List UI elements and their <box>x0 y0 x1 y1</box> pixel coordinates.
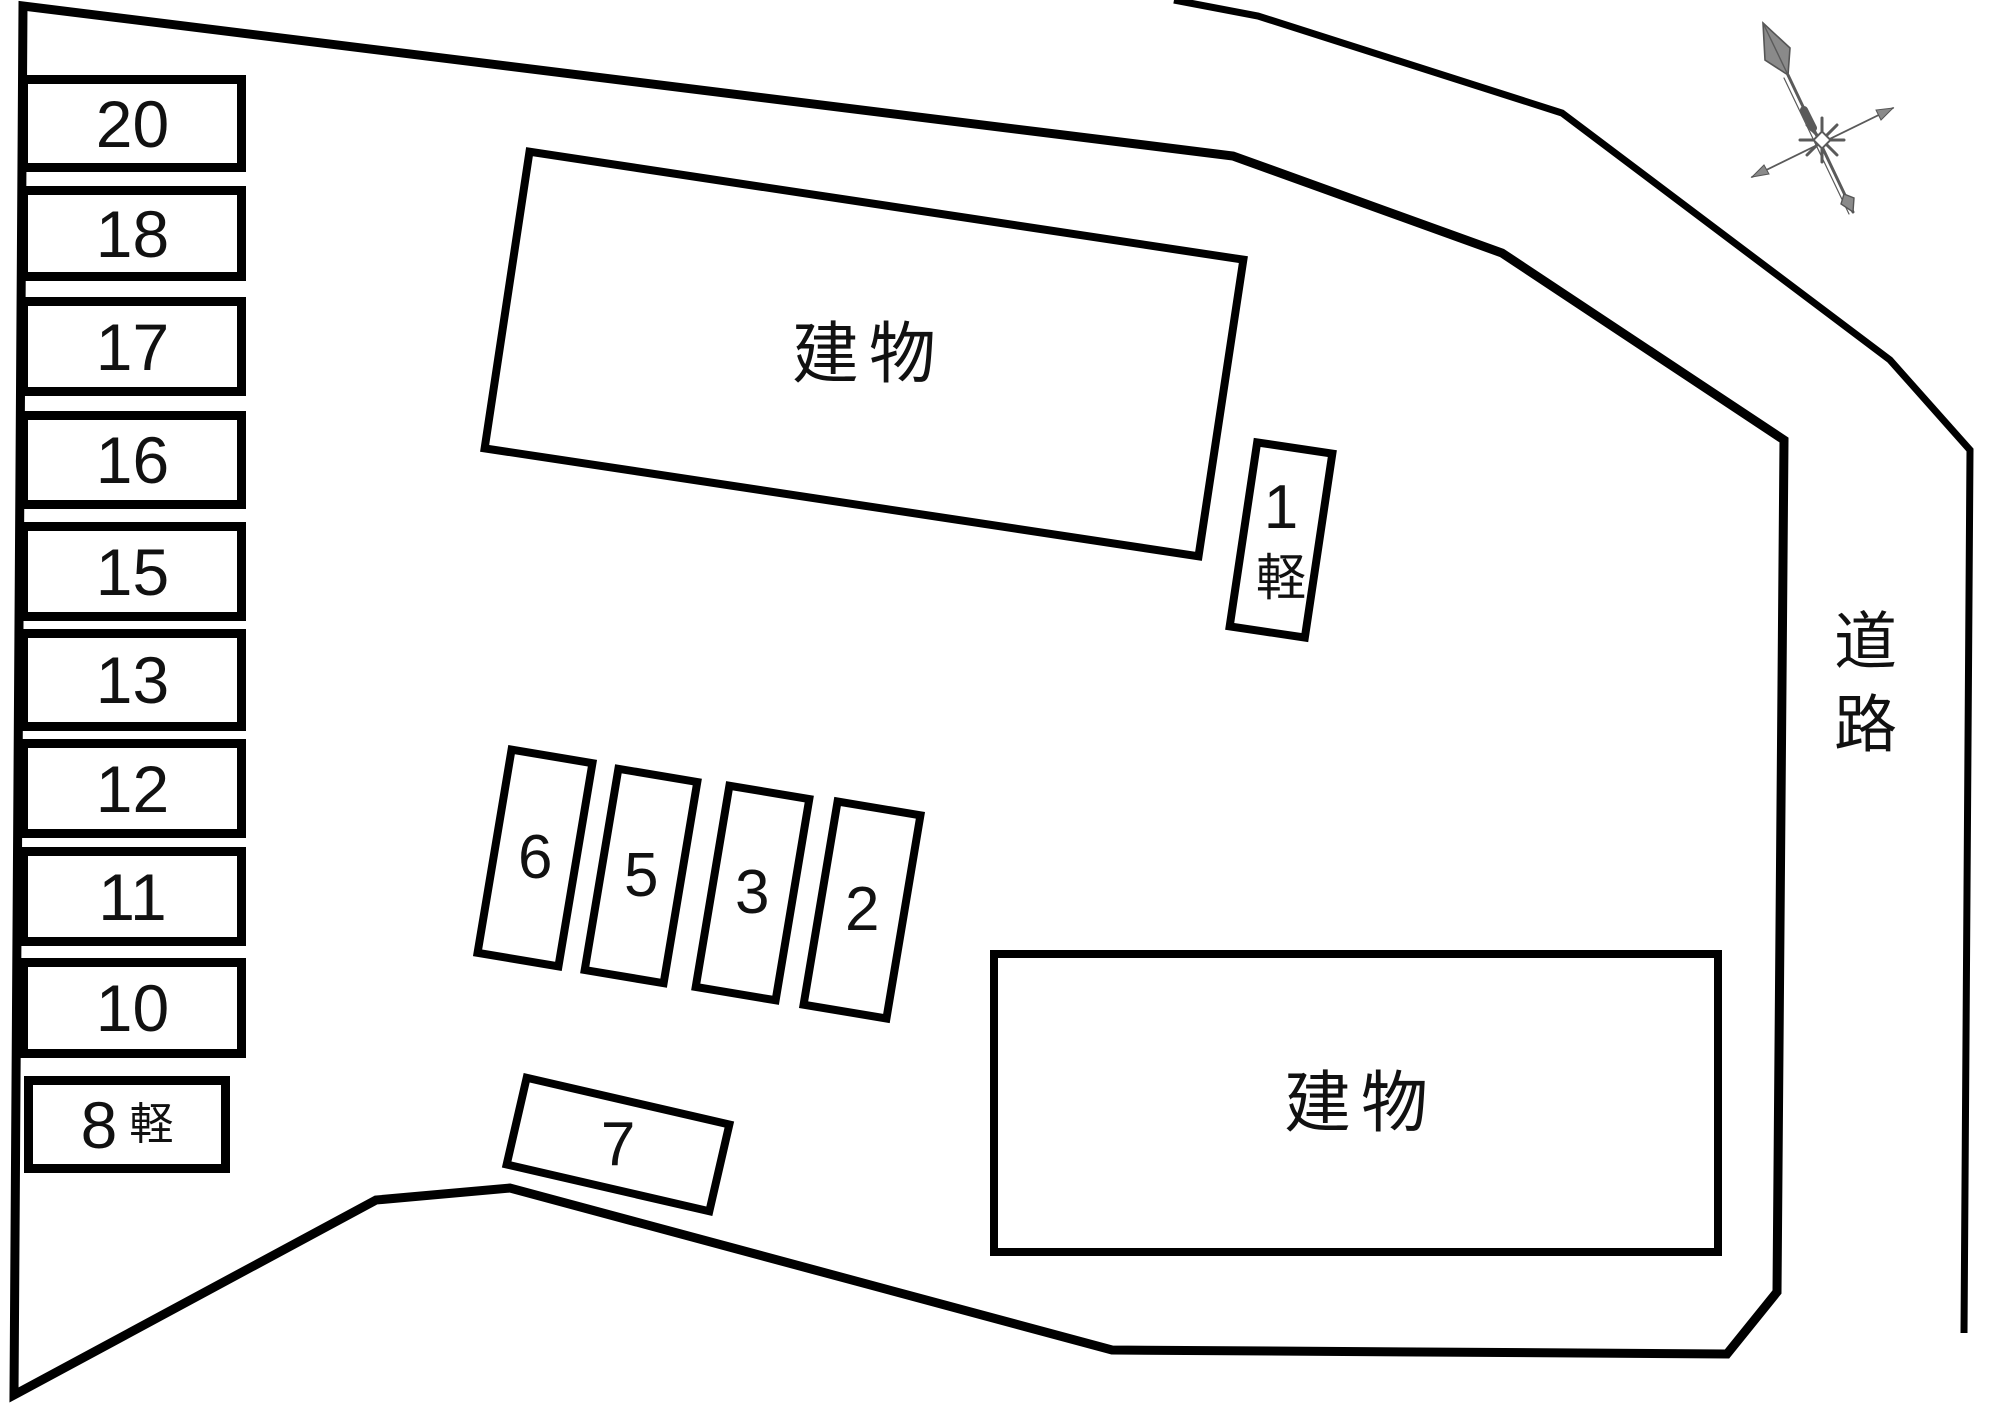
parking-space-15: 15 <box>19 522 246 621</box>
space-number: 18 <box>96 201 169 267</box>
building-label: 建物 <box>782 321 946 388</box>
space-number: 12 <box>96 756 169 822</box>
parking-space-18: 18 <box>19 186 246 281</box>
space-number: 1 <box>1264 477 1298 539</box>
space-number: 11 <box>98 864 167 930</box>
space-number: 13 <box>96 647 169 713</box>
road-label: 道路 <box>1828 608 1891 774</box>
space-number: 17 <box>96 314 169 380</box>
parking-space-17: 17 <box>19 297 246 396</box>
space-number: 3 <box>735 862 769 924</box>
space-number: 20 <box>96 91 169 157</box>
space-number: 15 <box>96 539 169 605</box>
compass-rose-icon <box>1744 16 1904 221</box>
kei-car-tag: 軽 <box>1256 553 1306 603</box>
space-number: 7 <box>601 1113 635 1175</box>
space-number: 8 <box>81 1092 118 1158</box>
space-number: 10 <box>96 975 169 1041</box>
parking-space-13: 13 <box>19 629 246 731</box>
parking-space-11: 11 <box>19 847 246 946</box>
parking-space-16: 16 <box>19 411 246 509</box>
kei-car-tag: 軽 <box>129 1103 173 1147</box>
space-number: 16 <box>96 427 169 493</box>
building-label: 建物 <box>1274 1070 1438 1137</box>
space-number: 6 <box>518 827 552 889</box>
parking-space-12: 12 <box>19 739 246 838</box>
space-number: 2 <box>845 879 879 941</box>
parking-space-10: 10 <box>19 958 246 1058</box>
space-number: 5 <box>624 845 658 907</box>
building-bottom: 建物 <box>990 950 1722 1256</box>
parking-site-plan: 20 18 17 16 15 13 12 11 10 8 軽 建物 1 軽 6 <box>0 0 1994 1409</box>
parking-space-8-kei: 8 軽 <box>24 1076 230 1173</box>
parking-space-20: 20 <box>19 75 246 172</box>
